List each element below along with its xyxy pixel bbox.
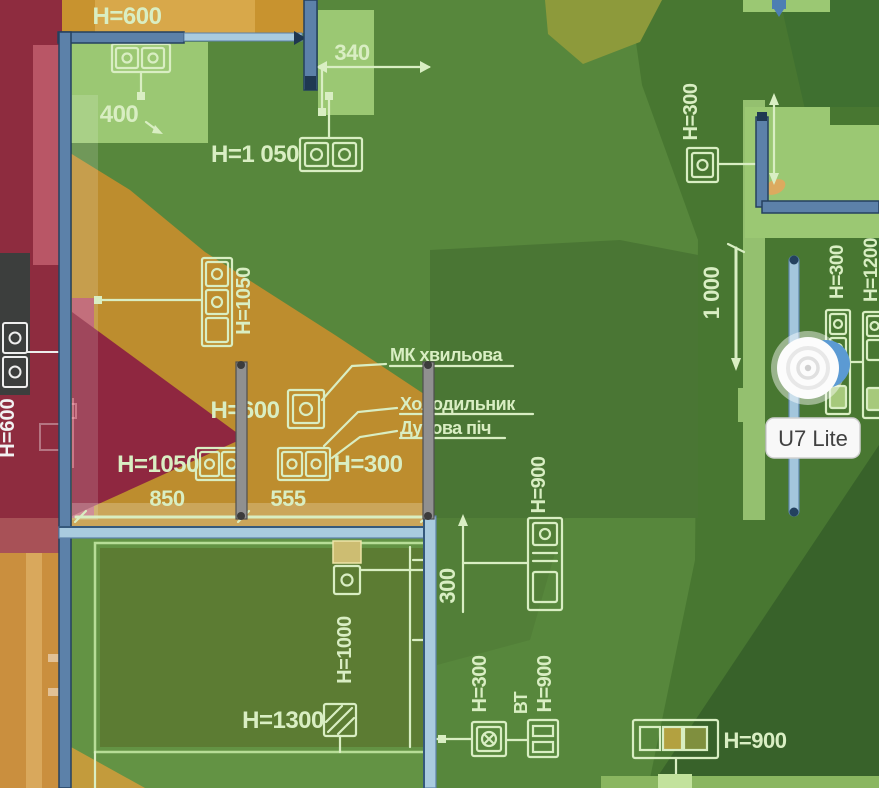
device-label[interactable]: U7 Lite	[766, 418, 860, 458]
dim-555: 555	[270, 486, 305, 511]
height-label-left-h600: Н=600	[0, 398, 19, 458]
bottom-dim-band	[601, 776, 879, 788]
wall-room-right	[424, 516, 436, 788]
dim-340: 340	[334, 40, 369, 65]
height-label-outlet-h900: Н=900	[724, 728, 787, 753]
height-label-edge-h300: Н=300	[827, 245, 848, 299]
dim-400: 400	[100, 101, 139, 128]
height-label-bottom-bt: ВТ	[511, 691, 531, 714]
height-label-center-h900: Н=900	[528, 456, 550, 513]
wall-right-horizontal	[762, 201, 879, 213]
height-label-kitchen-h300: Н=300	[334, 451, 403, 478]
floorplan-canvas: Н=600 400 340 Н=1 050	[0, 0, 879, 788]
height-label-h1050-top: Н=1 050	[211, 141, 299, 168]
appliance-label-fridge: Холодильник	[400, 394, 516, 414]
bottom-dim-tick	[658, 774, 692, 788]
height-label-right-h300: Н=300	[680, 83, 702, 140]
appliance-label-microwave: МК хвильова	[390, 345, 503, 365]
wall-room-top	[59, 527, 430, 538]
wall-left	[59, 32, 71, 788]
device-label-text: U7 Lite	[778, 426, 848, 451]
wall-top	[58, 32, 184, 43]
height-label-kitchen-h1050: Н=1050	[117, 451, 199, 478]
hob-icon	[333, 541, 361, 563]
dim-1000: 1 000	[699, 266, 724, 319]
wall-right-vertical	[756, 117, 768, 207]
door-marker	[772, 0, 786, 9]
height-label-top-h600: Н=600	[93, 3, 162, 30]
height-label-stack-h1050: Н=1050	[233, 267, 255, 335]
height-label-bottom-bt-h900: Н=900	[534, 655, 556, 712]
wifi-heatmap-floorplan: Н=600 400 340 Н=1 050	[0, 0, 879, 788]
dim-300: 300	[435, 568, 460, 603]
door-leaf	[184, 33, 302, 41]
dim-850: 850	[149, 486, 184, 511]
height-label-room-h1000: Н=1000	[334, 616, 356, 684]
height-label-room-h1300: Н=1300	[242, 707, 324, 734]
height-label-bottom-h300: Н=300	[469, 655, 491, 712]
appliance-label-oven: Духова піч	[400, 418, 491, 438]
height-label-edge-h1200: Н=1200	[861, 238, 879, 302]
outlet-round-icon	[472, 722, 506, 756]
